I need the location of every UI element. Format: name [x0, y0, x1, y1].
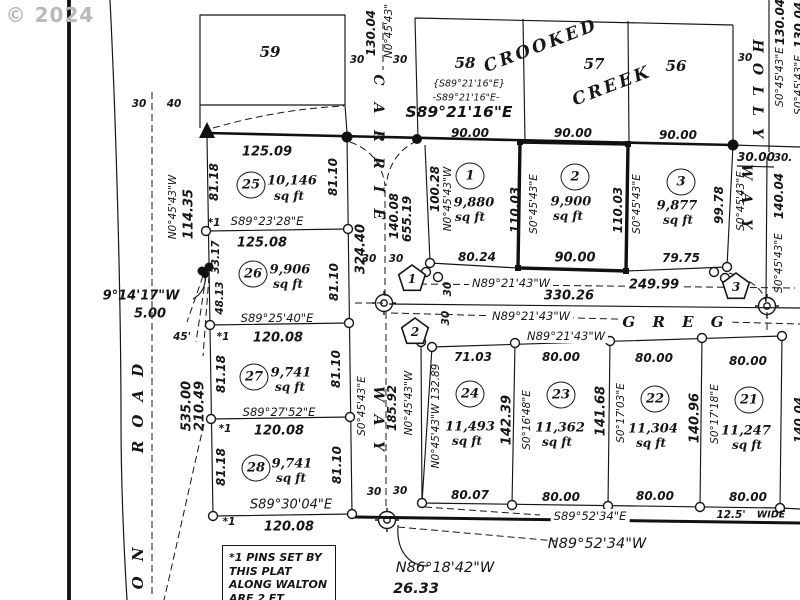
lot25-e-dim-81-10: 81.10 [326, 158, 340, 196]
dim-125-08: 125.08 [237, 236, 287, 251]
lot2-corner-ne [625, 141, 631, 147]
pin-star-1a: *1 [208, 217, 221, 229]
dim-120-08c: 120.08 [264, 520, 314, 535]
street-carrie-letter-a: A [370, 103, 386, 114]
lot1-dim-100-28: 100.28 [428, 166, 442, 212]
lot-3-circled-number: 3 [667, 169, 696, 196]
lot-25-circled-number: 25 [237, 172, 266, 199]
edge-bearing-1: S0°45'43"E [793, 55, 800, 115]
carrie-dim-130-04: 130.04 [364, 10, 378, 56]
dim-12-5: 12.5' [716, 509, 745, 521]
lot3-area: 9,877 [657, 199, 698, 214]
street-carrieway-letter-w: W [370, 386, 386, 402]
dim-120-08b: 120.08 [254, 424, 304, 439]
lot23-sqft: sq ft [542, 435, 572, 449]
triangle-monument [199, 122, 215, 138]
note-line-2: THIS PLAT [229, 565, 333, 579]
lot2-corner-se [623, 268, 629, 274]
dim-80-00-22b: 80.00 [636, 489, 674, 503]
lot27-w-dim-81-18: 81.18 [214, 355, 228, 393]
lot26-sqft: sq ft [273, 277, 303, 291]
dim-30-low-w: 30 [367, 486, 382, 498]
dim-80-00-23t: 80.00 [542, 350, 580, 364]
note-line-4: ARE 2 FT [229, 592, 333, 600]
lot-2-circled-number: 2 [561, 164, 590, 191]
lot28-e-dim-81-10: 81.10 [330, 446, 344, 484]
dim-45ft: 45' [173, 331, 191, 343]
street-carrie-letter-r1: R [370, 130, 386, 142]
lot2-dim-110-03-e: 110.03 [611, 187, 625, 233]
bearing-s893004: S89°30'04"E [247, 498, 335, 513]
lot25-sqft: sq ft [274, 189, 304, 203]
street-carrie-letter-e: E [370, 209, 386, 220]
plat-note-box: *1 PINS SET BYTHIS PLATALONG WALTONARE 2… [222, 545, 336, 600]
watermark-text: © 2024 [6, 3, 95, 27]
holly-dim-130-04: 130.04 [773, 0, 787, 45]
lot26-area: 9,906 [270, 263, 311, 278]
bearing-s892328: S89°23'28"E [231, 214, 304, 228]
lot23-area: 11,362 [535, 421, 585, 436]
lot23-dim-141-68: 141.68 [594, 386, 609, 436]
edge-dim-140-04: 140.04 [792, 397, 800, 443]
dim-30-top-left: 30 [132, 98, 147, 110]
lot-21-circled-number: 21 [735, 387, 764, 414]
bearing-n892143-b: N89°21'43"W [489, 309, 573, 323]
dim-125-09: 125.09 [242, 145, 292, 160]
lot22-area: 11,304 [628, 422, 678, 437]
lot23-bearing: S0°16'48"E [521, 390, 533, 450]
street-road: ROAD [129, 351, 147, 453]
bearing-n895234: N89°52'34"W [548, 536, 646, 552]
dim-30-carrie-w: 30 [350, 54, 365, 66]
lot58-number: 58 [455, 54, 476, 72]
dim-40-top-left: 40 [167, 98, 182, 110]
lot1-area: 9,880 [454, 196, 495, 211]
lot2-corner-sw [515, 265, 521, 271]
street-carrieway-letter-a: A [370, 415, 386, 426]
lot22-bearing: S0°17'03"E [615, 383, 627, 443]
lot24-area: 11,493 [445, 420, 495, 435]
pentagon-1-number: 1 [408, 272, 416, 286]
lot-24-circled-number: 24 [456, 381, 485, 408]
dim-30-greg-s: 30 [440, 311, 452, 326]
bearing-s892116-braced: {S89°21'16"E} [433, 79, 505, 90]
bearing-s892116: S89°21'16"E [405, 103, 512, 121]
lot21-sqft: sq ft [732, 438, 762, 452]
offset-dim-5-00: 5.00 [134, 307, 166, 322]
lot-22-circled-number: 22 [641, 386, 670, 413]
pin-star-1d: *1 [223, 516, 236, 528]
lot1-bearing-w: N0°45'43"W [442, 167, 454, 232]
lot2-bearing-w: S0°45'43"E [528, 174, 540, 234]
plat-map: *1 PINS SET BYTHIS PLATALONG WALTONARE 2… [0, 0, 800, 600]
lot-23-circled-number: 23 [547, 382, 576, 409]
label-wide: WIDE [757, 510, 785, 521]
lot56-number: 56 [666, 57, 687, 75]
dim-30-mid-w: 30 [362, 253, 377, 265]
bearing-n892143-c: N89°21'43"W [524, 329, 608, 343]
dim-80-00-21t: 80.00 [729, 354, 767, 368]
lot57-number: 57 [584, 55, 605, 73]
dim-79-75: 79.75 [662, 251, 700, 265]
dim-71-03: 71.03 [454, 350, 492, 364]
street-holly-letter-h: H [749, 39, 765, 52]
pentagon-3-number: 3 [732, 280, 740, 294]
dim-90-lot56: 90.00 [659, 128, 697, 142]
lot3-dim-99-78: 99.78 [712, 186, 726, 224]
dim-90-lot58: 90.00 [451, 126, 489, 140]
carrie-dim-655-19: 655.19 [400, 196, 414, 242]
lot28-w-dim-81-18: 81.18 [214, 448, 228, 486]
walton-bearing-n04543: N0°45'43"W [167, 175, 179, 240]
street-carrie-letter-r2: R [370, 157, 386, 169]
lot24-sqft: sq ft [452, 434, 482, 448]
dim-30-dot: 30. [774, 152, 793, 164]
street-holly-letter-o: O [749, 63, 765, 75]
bearing-n861842: N86°18'42"W [396, 560, 494, 576]
lot-1-circled-number: 1 [456, 163, 485, 190]
street-carrieway-letter-y: Y [370, 441, 386, 451]
holly-bearing-1: S0°45'43"E [774, 47, 786, 107]
lot24-bearing-dim: N0°45'43"W 132.89 [430, 364, 442, 469]
pentagon-2-number: 2 [411, 325, 419, 339]
lot21-bearing: S0°17'18"E [709, 384, 721, 444]
dim-30-greg-n: 30 [442, 282, 454, 297]
note-line-1: *1 PINS SET BY [229, 551, 333, 565]
lot25-w-dim-81-18: 81.18 [207, 163, 221, 201]
dim-90-lot57: 90.00 [554, 126, 592, 140]
street-walton-partial: TON [129, 533, 147, 600]
dim-80-00-23b: 80.00 [542, 490, 580, 504]
bearing-n892143-a: N89°21'43"W [469, 276, 553, 290]
lot2-dim-110-03-w: 110.03 [508, 187, 522, 233]
street-carrie-letter-c: C [370, 74, 386, 85]
dim-30-low-e: 30 [393, 485, 408, 497]
carrie-s-bearing-e: N0°45'43"W [403, 371, 415, 436]
lot1-sqft: sq ft [455, 210, 485, 224]
dim-80-24: 80.24 [458, 250, 496, 264]
lot26-e-dim-81-10: 81.10 [327, 263, 341, 301]
lot25-area: 10,146 [267, 174, 317, 189]
lot24-dim-142-39: 142.39 [500, 395, 515, 445]
lot27-sqft: sq ft [275, 380, 305, 394]
carrie-dim-140-08: 140.08 [387, 193, 401, 239]
carrie-dim-324-40: 324.40 [354, 224, 369, 274]
lot28-sqft: sq ft [276, 471, 306, 485]
lot21-area: 11,247 [721, 424, 771, 439]
street-carrie-letter-i: I [370, 186, 386, 193]
bearing-s892752: S89°27'52"E [243, 405, 316, 419]
dim-249-99: 249.99 [626, 278, 682, 293]
walton-dim-114-35: 114.35 [182, 189, 197, 239]
lot2-area: 9,900 [551, 195, 592, 210]
lot2-corner-nw [517, 139, 523, 145]
lot3-sqft: sq ft [663, 213, 693, 227]
dim-30-mid-e: 30 [389, 253, 404, 265]
offset-bearing-91417: 9°14'17"W [103, 289, 180, 304]
lot59-number: 59 [260, 43, 281, 61]
street-holly-letter-y: Y [749, 128, 765, 138]
lot27-area: 9,741 [271, 366, 312, 381]
dim-330-26: 330.26 [544, 289, 594, 304]
lot2-bearing-e: S0°45'43"E [631, 174, 643, 234]
bearing-s892116-dashed: -S89°21'16"E- [433, 93, 500, 104]
lot-28-circled-number: 28 [242, 455, 271, 482]
dim-26-33: 26.33 [393, 581, 439, 597]
dim-90-00-lot2: 90.00 [554, 251, 595, 266]
lot-27-circled-number: 27 [240, 364, 269, 391]
bearing-s892540: S89°25'40"E [241, 311, 314, 325]
street-greg: G R E G [619, 313, 732, 331]
holly-dim-140-04: 140.04 [772, 173, 786, 219]
dim-80-00-22t: 80.00 [635, 351, 673, 365]
dim-48-13: 48.13 [214, 281, 226, 314]
dim-30-00: 30.00 [737, 150, 775, 164]
dim-120-08a: 120.08 [253, 331, 303, 346]
lot22-dim-140-96: 140.96 [688, 393, 703, 443]
lot27-e-dim-81-10: 81.10 [329, 350, 343, 388]
dim-33-17: 33.17 [210, 240, 222, 273]
dim-80-00-21b: 80.00 [729, 490, 767, 504]
carrie-bearing-top: N0°45'43" [383, 4, 395, 58]
lot22-sqft: sq ft [636, 436, 666, 450]
walton-dim-210-49: 210.49 [193, 381, 208, 431]
edge-dim-130-04: 130.04 [792, 2, 800, 48]
street-holly-letter-l1: L [749, 86, 765, 96]
dim-80-07: 80.07 [451, 488, 489, 502]
pin-star-1c: *1 [219, 423, 232, 435]
dim-30-carrie-e: 30 [393, 54, 408, 66]
carrie-dim-185-92: 185.92 [385, 385, 399, 431]
carrie-s-bearing-w: S0°45'43"E [356, 376, 368, 436]
lot2-sqft: sq ft [553, 209, 583, 223]
street-holly-letter-l2: L [749, 106, 765, 116]
bearing-s895234: S89°52'34"E [551, 509, 630, 523]
lot-26-circled-number: 26 [239, 261, 268, 288]
pin-star-1b: *1 [217, 331, 230, 343]
lot3-bearing-e: S0°45'43"E [735, 171, 747, 231]
lot28-area: 9,741 [272, 457, 313, 472]
note-line-3: ALONG WALTON [229, 578, 333, 592]
holly-bearing-2: S0°45'43"E [773, 233, 785, 293]
